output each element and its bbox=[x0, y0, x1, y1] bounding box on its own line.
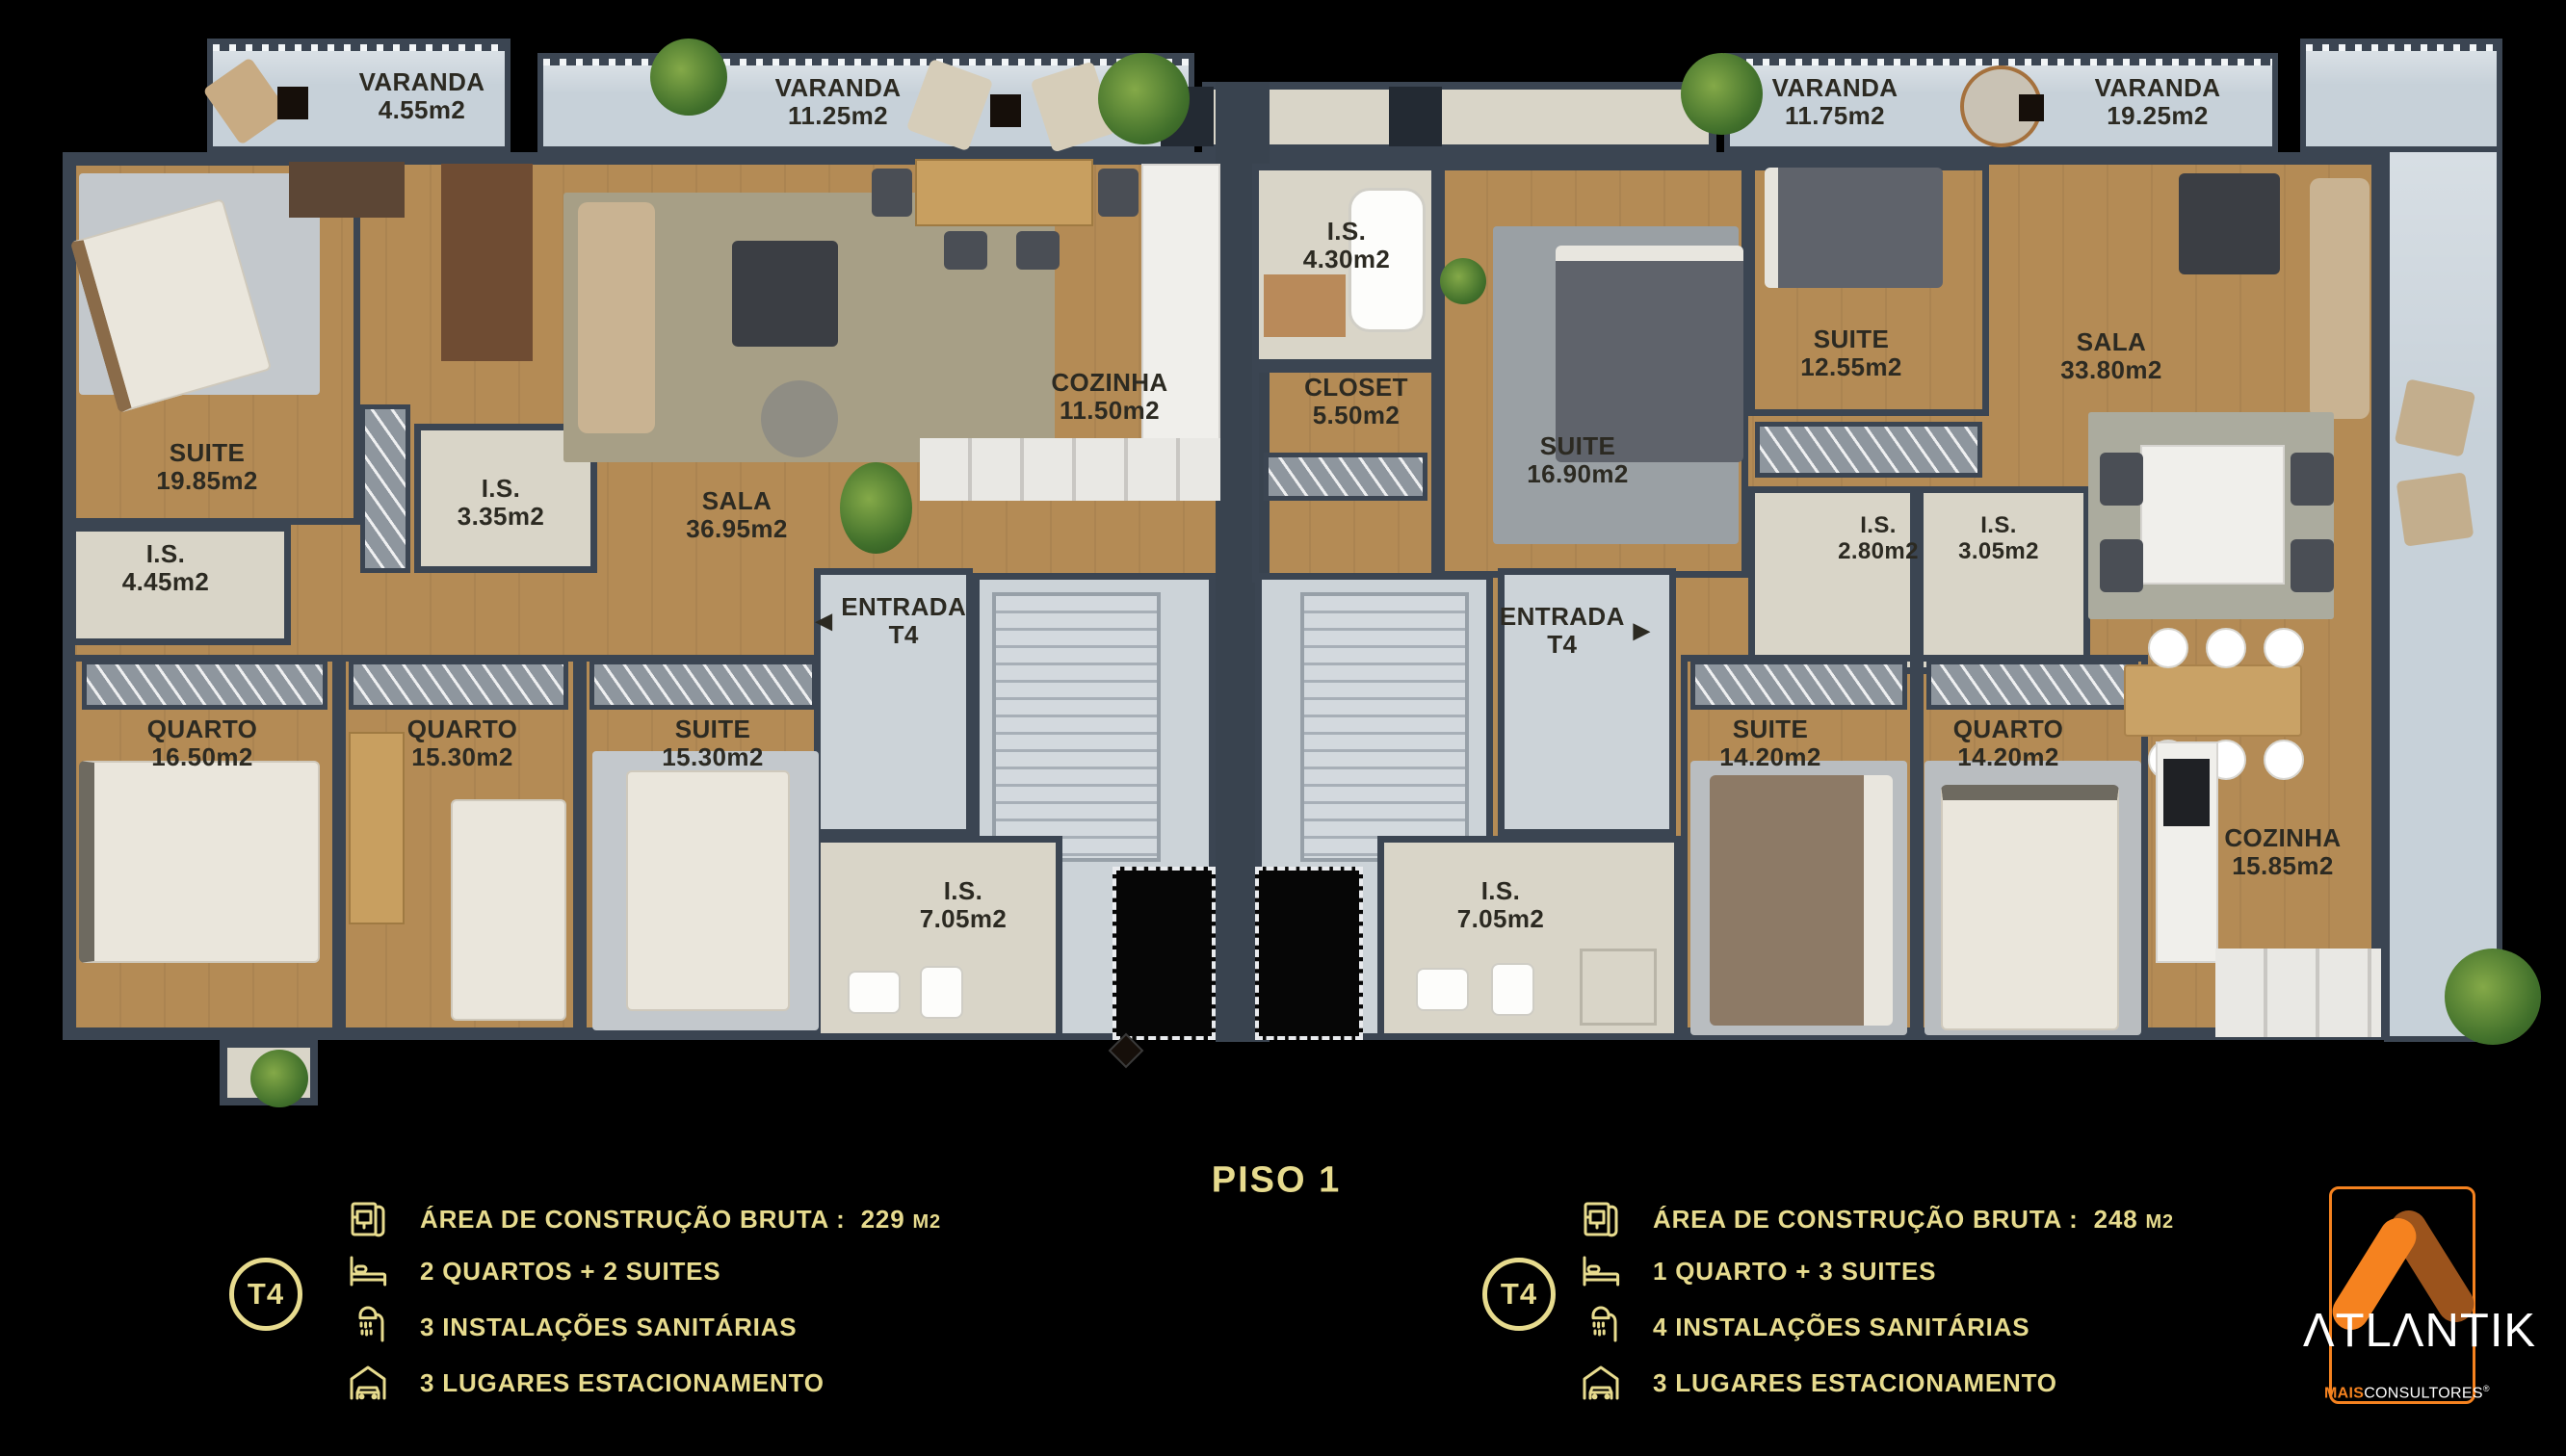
dining-chair bbox=[2291, 539, 2334, 592]
dining-table-right bbox=[2140, 445, 2285, 585]
bar-stool bbox=[2148, 628, 2188, 668]
plant bbox=[1440, 258, 1486, 304]
coffee-table-right bbox=[2179, 173, 2280, 274]
wardrobe-suite-1255 bbox=[1755, 422, 1982, 478]
dining-table-left bbox=[915, 159, 1093, 226]
label-suite-1530: SUITE15.30m2 bbox=[662, 715, 763, 771]
brand-name: ΛTLΛNTIK bbox=[2290, 1304, 2550, 1358]
bed-suite-1420 bbox=[1710, 775, 1893, 1026]
plant bbox=[250, 1050, 308, 1107]
legend-right-bedrooms: 1 QUARTO + 3 SUITES bbox=[1578, 1248, 1936, 1294]
desk-quarto-1530 bbox=[349, 732, 405, 924]
plant bbox=[840, 462, 912, 554]
legend-left-bedrooms: 2 QUARTOS + 2 SUITES bbox=[345, 1248, 720, 1294]
floor-plan-poster: { "page": { "title": "PISO 1" }, "colors… bbox=[0, 0, 2566, 1456]
cooktop bbox=[2163, 759, 2210, 826]
label-quarto-1530: QUARTO15.30m2 bbox=[407, 715, 518, 771]
wardrobe-quarto-1530 bbox=[349, 660, 568, 710]
side-table bbox=[277, 87, 308, 119]
plant bbox=[1098, 53, 1190, 144]
wardrobe-suite-1530 bbox=[589, 660, 817, 710]
bed-icon bbox=[345, 1248, 391, 1294]
shower-pan bbox=[1580, 949, 1657, 1026]
label-varanda-455: VARANDA4.55m2 bbox=[359, 68, 485, 124]
terrace-chair bbox=[2395, 378, 2476, 456]
shower-icon bbox=[345, 1304, 391, 1350]
entrada-arrow-icon: ◀ bbox=[816, 610, 832, 634]
label-is-335: I.S.3.35m2 bbox=[458, 475, 545, 531]
plant bbox=[650, 39, 727, 116]
vanity-is-430 bbox=[1264, 274, 1346, 337]
sofa-left bbox=[578, 202, 655, 433]
front-door-right bbox=[1389, 87, 1442, 146]
label-entrada-left: ◀ ENTRADAT4 bbox=[816, 593, 966, 649]
dining-chair bbox=[1098, 169, 1139, 217]
label-closet-550: CLOSET5.50m2 bbox=[1304, 374, 1408, 429]
wardrobe-corridor-left bbox=[360, 404, 410, 573]
bed-icon bbox=[1578, 1248, 1624, 1294]
label-suite-1420: SUITE14.20m2 bbox=[1719, 715, 1820, 771]
dining-chair bbox=[944, 231, 987, 270]
kitchen-appliances-left bbox=[920, 438, 1220, 501]
elevator-shaft-right bbox=[1255, 867, 1363, 1040]
wardrobe-quarto-1420 bbox=[1926, 660, 2138, 710]
dining-chair bbox=[872, 169, 912, 217]
label-is-705-left: I.S.7.05m2 bbox=[920, 877, 1008, 933]
dining-chair bbox=[2291, 453, 2334, 506]
entrance-porch bbox=[1202, 82, 1716, 152]
label-sala-3380: SALA33.80m2 bbox=[2060, 328, 2161, 384]
bed-quarto-1650 bbox=[79, 761, 320, 963]
stairs-left bbox=[992, 592, 1161, 862]
unit-type-badge-right: T4 bbox=[1482, 1258, 1556, 1331]
legend-right-parking: 3 LUGARES ESTACIONAMENTO bbox=[1578, 1360, 2057, 1406]
dining-chair bbox=[1016, 231, 1060, 270]
garage-icon bbox=[345, 1360, 391, 1406]
label-quarto-1650: QUARTO16.50m2 bbox=[147, 715, 258, 771]
garage-icon bbox=[1578, 1360, 1624, 1406]
sideboard-left bbox=[289, 162, 405, 218]
blueprint-icon bbox=[345, 1196, 391, 1242]
label-suite-1255: SUITE12.55m2 bbox=[1800, 325, 1901, 381]
floor-title: PISO 1 bbox=[1212, 1160, 1342, 1202]
label-is-445: I.S.4.45m2 bbox=[122, 540, 210, 596]
wardrobe-quarto-1650 bbox=[82, 660, 327, 710]
label-sala-3695: SALA36.95m2 bbox=[686, 487, 787, 543]
varanda-right-large bbox=[2300, 39, 2502, 152]
toilet bbox=[1491, 963, 1534, 1016]
bar-stool bbox=[2206, 628, 2246, 668]
brand-subtitle: MAISCONSULTORES® bbox=[2324, 1384, 2480, 1402]
pouf-left bbox=[761, 380, 838, 457]
blueprint-icon bbox=[1578, 1196, 1624, 1242]
label-cozinha-1150: COZINHA11.50m2 bbox=[1051, 369, 1167, 425]
coffee-table-left bbox=[732, 241, 838, 347]
sink bbox=[848, 971, 901, 1014]
wardrobe-suite-1420 bbox=[1690, 660, 1907, 710]
bed-quarto-1420 bbox=[1941, 785, 2119, 1030]
elevator-shaft-left bbox=[1113, 867, 1216, 1040]
label-is-280: I.S.2.80m2 bbox=[1838, 513, 1919, 565]
dining-chair bbox=[2100, 539, 2143, 592]
side-table bbox=[2019, 94, 2044, 121]
bar-stool bbox=[2264, 740, 2304, 780]
label-quarto-1420: QUARTO14.20m2 bbox=[1953, 715, 2064, 771]
shower-icon bbox=[1578, 1304, 1624, 1350]
label-entrada-right: ENTRADAT4 ▶ bbox=[1500, 603, 1650, 659]
media-unit bbox=[441, 164, 533, 361]
label-varanda-1925: VARANDA19.25m2 bbox=[2095, 74, 2221, 130]
label-varanda-1175: VARANDA11.75m2 bbox=[1772, 74, 1898, 130]
label-is-705-right: I.S.7.05m2 bbox=[1457, 877, 1545, 933]
closet-wardrobe-1 bbox=[1264, 453, 1427, 501]
bar-stool bbox=[2264, 628, 2304, 668]
bed-suite-1690 bbox=[1556, 246, 1743, 462]
label-suite-1985: SUITE19.85m2 bbox=[156, 439, 257, 495]
legend-right-area: ÁREA DE CONSTRUÇÃO BRUTA : 248 M2 bbox=[1578, 1196, 2174, 1242]
sofa-right bbox=[2310, 178, 2370, 419]
label-is-305: I.S.3.05m2 bbox=[1958, 513, 2039, 565]
kitchen-island bbox=[2124, 664, 2302, 737]
kitchen-cabinets-right bbox=[2215, 949, 2381, 1037]
entrada-arrow-icon: ▶ bbox=[1634, 619, 1650, 643]
label-varanda-1125: VARANDA11.25m2 bbox=[775, 74, 902, 130]
legend-right-bathrooms: 4 INSTALAÇÕES SANITÁRIAS bbox=[1578, 1304, 2029, 1350]
terrace-chair bbox=[2396, 472, 2474, 546]
label-is-430: I.S.4.30m2 bbox=[1303, 218, 1391, 273]
legend-left-bathrooms: 3 INSTALAÇÕES SANITÁRIAS bbox=[345, 1304, 797, 1350]
label-suite-1690: SUITE16.90m2 bbox=[1527, 432, 1628, 488]
label-cozinha-1585: COZINHA15.85m2 bbox=[2224, 824, 2341, 880]
toilet bbox=[920, 966, 963, 1019]
unit-type-badge-left: T4 bbox=[229, 1258, 302, 1331]
legend-left-parking: 3 LUGARES ESTACIONAMENTO bbox=[345, 1360, 825, 1406]
bed-suite-1530 bbox=[626, 770, 790, 1011]
side-table bbox=[990, 94, 1021, 127]
bed-quarto-1530 bbox=[451, 799, 566, 1021]
dining-chair bbox=[2100, 453, 2143, 506]
stairs-right bbox=[1300, 592, 1469, 862]
legend-left-area: ÁREA DE CONSTRUÇÃO BRUTA : 229 M2 bbox=[345, 1196, 941, 1242]
sink bbox=[1416, 968, 1469, 1011]
bed-suite-1255 bbox=[1765, 168, 1943, 288]
plant bbox=[1681, 53, 1763, 135]
plant bbox=[2445, 949, 2541, 1045]
